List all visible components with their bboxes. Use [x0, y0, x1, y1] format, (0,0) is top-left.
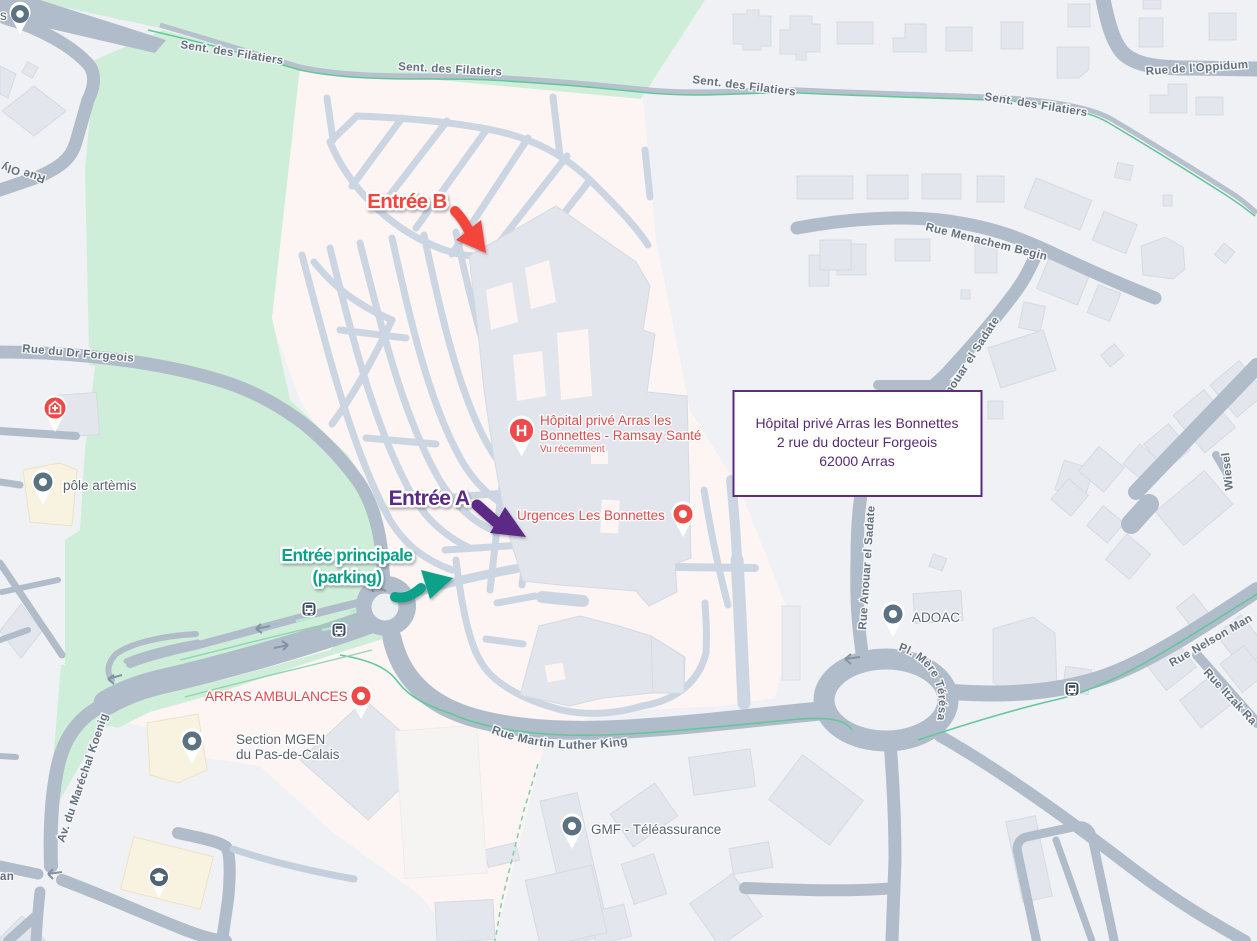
svg-text:ARRAS AMBULANCES: ARRAS AMBULANCES	[205, 689, 347, 704]
svg-text:(parking): (parking)	[312, 567, 381, 587]
svg-text:Vu récemment: Vu récemment	[540, 444, 605, 455]
svg-text:62000 Arras: 62000 Arras	[819, 453, 895, 469]
svg-text:an: an	[0, 871, 14, 883]
svg-text:Entrée principale: Entrée principale	[282, 545, 413, 565]
svg-text:du Pas-de-Calais: du Pas-de-Calais	[236, 747, 340, 762]
svg-text:Bonnettes - Ramsay Santé: Bonnettes - Ramsay Santé	[540, 428, 701, 443]
svg-text:Hôpital privé Arras les: Hôpital privé Arras les	[540, 413, 672, 428]
svg-text:Urgences Les Bonnettes: Urgences Les Bonnettes	[517, 508, 665, 523]
svg-text:pôle artèmis: pôle artèmis	[63, 478, 137, 493]
svg-text:H: H	[516, 423, 528, 440]
svg-text:2 rue du docteur Forgeois: 2 rue du docteur Forgeois	[777, 434, 937, 450]
svg-text:s: s	[0, 8, 7, 23]
svg-text:Entrée A: Entrée A	[389, 487, 470, 510]
svg-text:Entrée B: Entrée B	[367, 190, 447, 213]
svg-text:Hôpital privé Arras les Bonnet: Hôpital privé Arras les Bonnettes	[755, 415, 958, 431]
svg-text:ADOAC: ADOAC	[912, 610, 960, 625]
svg-text:Section MGEN: Section MGEN	[236, 732, 325, 747]
svg-text:GMF - Téléassurance: GMF - Téléassurance	[591, 822, 721, 837]
